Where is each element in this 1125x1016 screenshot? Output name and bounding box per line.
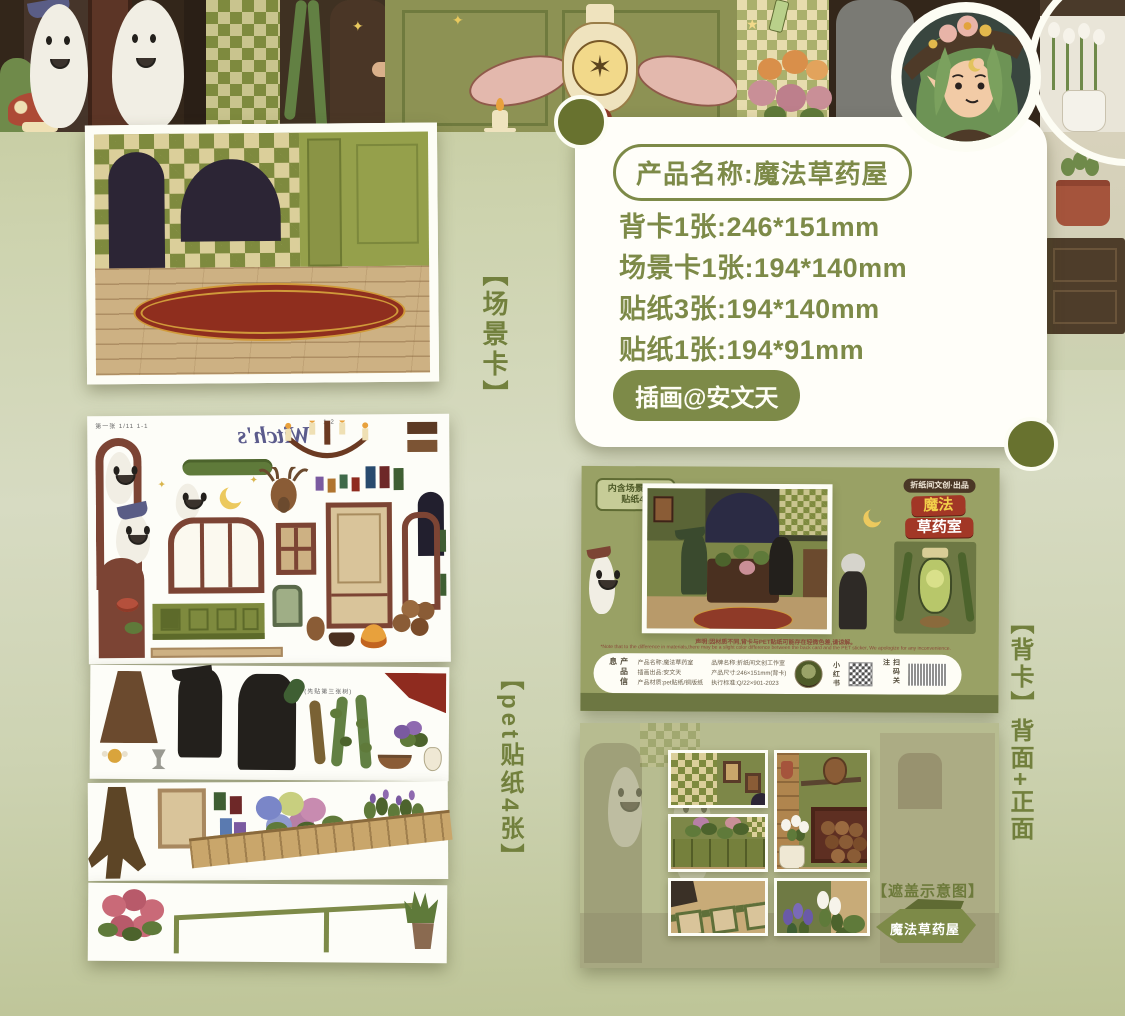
goblet-sticker [152,749,166,769]
tree-trunk-sticker [88,787,146,879]
plant-pot-sticker [410,923,436,949]
flower-icon [748,80,776,106]
decorative-dot [554,95,608,149]
shot-floor [799,867,870,872]
pet-sticker-label: 【pet贴纸4张】 [492,666,527,871]
mushroom-sticker [125,622,143,634]
cabinet-front [673,839,768,867]
info-line: 品牌名称:折纸间文创工作室 [711,658,786,669]
spec-line: 背卡1张:246*151mm [619,205,880,244]
potion-books-sticker [214,792,226,810]
window-mullion [281,547,311,551]
rose-bush-sticker [102,895,126,917]
sticker-sheet-1: 第一张 1/11 1-1 1-2 Witch's ✦ ✦ [87,414,451,665]
candle-icon [492,110,508,130]
publisher-badge: 折纸间文创·出品 [904,479,976,493]
info-line: 执行标准:Q/22×901-2023 [711,679,786,690]
title-ribbon: 魔法草药屋 [876,895,976,947]
sparkle-icon: ★ [746,16,759,33]
leaf-cluster-sticker [330,708,342,718]
shot-checker-corner [747,817,768,837]
log-pile-icon [821,821,835,835]
sheet2-note: (先贴第三张树) [304,686,352,695]
ghost-sticker [116,512,150,564]
door-rail [331,593,387,596]
scene-cabinet [356,144,419,245]
vine-sticker [355,694,372,769]
flower-icon [782,50,808,74]
shelf-drawer [1053,248,1117,282]
framed-picture [653,496,673,522]
door-sticker [326,502,393,628]
rail-panel [743,901,768,930]
cabinet-door [242,608,258,630]
sparkle-icon: ✦ [452,12,464,29]
ghost-sticker [176,483,200,519]
scene-plants [733,545,749,559]
shot-floor [671,867,768,872]
mushroom-sticker [116,598,138,612]
info-line: 产品材质:pet贴纸/铜版纸 [637,678,703,689]
info-line: 插画出品:安文天 [638,668,704,679]
shelf-drawer [1053,290,1117,324]
sticker-sheet-3 [88,781,449,881]
bush-icon [843,915,865,933]
scene-card-label: 【场景卡】 [476,260,513,410]
faded-mirror [898,753,942,809]
granny-robe [839,571,867,629]
shot-checker [671,753,717,808]
potion-row-sticker [316,477,324,491]
illustrator-avatar [891,2,1041,152]
sconce-stickers [440,530,446,552]
railing-post [174,917,179,953]
scene-rug [693,606,793,633]
snitch-sticker [108,749,122,763]
lavender-blooms [370,793,376,803]
rail-panel [709,905,738,934]
flower-icon [758,58,782,80]
cabinet-sticker [152,603,264,640]
witch-black [769,537,793,595]
info-bar-label: 产品信息 [607,657,629,689]
detail-shot-cabinet [668,814,768,872]
deer-head-sticker [255,467,311,517]
candle-dish [484,128,516,132]
tulip-vase-icon [779,845,805,869]
ghost-icon [112,0,184,132]
vase-icon [781,761,793,779]
ghost-mascot [589,554,615,614]
detail-shot-garden [774,878,870,936]
sparkle-icon: ✦ [352,18,364,35]
product-info-card: 产品名称:魔法草药屋 背卡1张:246*151mm 场景卡1张:194*140m… [575,117,1047,447]
product-info-bar: 产品信息 产品名称:魔法草药室 插画出品:安文天 产品材质:pet贴纸/铜版纸 … [593,653,961,695]
checker-wall [206,0,280,132]
scene-dresser [803,549,833,597]
title-chip-bottom: 草药室 [905,517,973,538]
flower-cluster-sticker [394,725,410,739]
spec-line: 贴纸1张:194*91mm [619,328,864,367]
hydrangea-sticker [256,796,282,820]
window-mullion [200,523,204,587]
narrow-frame-sticker [402,512,441,610]
dark-arch [751,793,768,808]
plant-row-icon [685,825,701,837]
framed-picture-icon [745,773,761,793]
product-name-badge: 产品名称:魔法草药屋 [613,144,912,201]
scroll-vine [957,552,974,622]
cabinet-door [160,609,180,631]
ribbon-label: 魔法草药屋 [890,919,960,938]
back-card-label: 【背卡】背面+正面 [1002,610,1037,843]
branch-sticker [309,700,326,765]
scan-label: 扫码关注 [880,658,900,690]
fireplace [811,807,870,863]
box-stickers [407,422,437,434]
back-card-scene [642,483,833,634]
hyacinth-icon [783,909,793,925]
door-panel [337,513,381,583]
scene-card-image [85,122,439,384]
wood-shelf [1045,238,1125,334]
owl-sticker [307,617,325,641]
tulip-bouquet-icon [781,819,791,831]
product-poster: ✶ ✦ ✦ ★ 产品名称:魔法草药屋 背卡1张:24 [0,0,1125,1016]
info-line: 产品名称:魔法草药室 [638,658,704,669]
coverage-demo-panel: 【遮盖示意图】 魔法草药屋 [580,723,999,968]
books-row-sticker [365,466,375,488]
scene-arch-doorway [108,152,165,270]
bread-basket-sticker [378,755,412,769]
cabinet-door [216,608,236,630]
bottle-glow [926,570,944,588]
moon-icon [863,509,881,527]
rail-panel [675,909,704,936]
info-line: 产品尺寸:246×151mm(背卡) [711,668,786,679]
detail-shot-fireplace-owl [774,750,870,872]
log-pile-sticker [393,614,411,632]
moth-ornament [920,616,950,628]
railing-post [324,910,329,952]
calla-lily-icon [817,891,829,909]
terracotta-pot-icon [1056,180,1110,226]
fence-sticker [189,810,453,869]
cabinet-door [188,608,208,630]
shadow-gap [184,0,206,132]
moon-sticker [220,487,242,509]
dark-corner [668,878,698,908]
scroll-vine [895,551,913,621]
owl-icon [823,757,847,785]
window-mullion [228,523,232,587]
back-card-image: 内含场景卡1p 贴纸4p 折纸间文创·出品 魔法 草药室 [580,466,999,713]
cover-art-panel [894,542,976,634]
plant-leaves-icon [1061,158,1075,176]
title-chip-top: 魔法 [911,495,966,517]
flower-icon [806,60,828,80]
vine-sticker [331,696,349,767]
bottle-cap [922,548,948,558]
robe-sticker [100,671,159,743]
pennant-sticker [384,673,446,713]
basket-sticker [329,632,355,646]
elf-avatar-icon [891,2,1041,152]
granny-witch [837,553,869,629]
floor-plank-sticker [151,647,283,658]
spec-line: 场景卡1张:194*140mm [619,246,907,285]
potted-plant-leaves [404,891,438,923]
sticker-sheet-2: (先贴第三张树) [90,665,450,782]
illustrator-badge: 插画@安文天 [613,370,800,421]
decorative-dot [1004,417,1058,471]
scene-checker [779,489,832,535]
back-card-bottom-strip [580,693,998,713]
candle-flame [496,98,504,111]
rose-leaves [98,923,118,937]
witch-figure-sticker [178,669,223,757]
sparkle-sticker: ✦ [158,480,166,491]
sticker-sheet-4 [88,883,448,964]
qr-code-icon [848,662,872,686]
info-col-2: 品牌名称:折纸间文创工作室 产品尺寸:246×151mm(背卡) 执行标准:Q/… [711,658,786,689]
lavender-plant-sticker [364,801,376,819]
scene-door [307,138,342,266]
detail-shot-railing [668,878,768,936]
small-window-sticker [276,523,316,575]
detail-shot-checker-wall [668,750,768,808]
flower-icon [806,86,832,110]
framed-picture-icon [723,761,741,783]
barcode-icon [908,664,946,686]
right-illustration-strip [1043,132,1125,370]
railing-sticker [174,903,418,921]
mirror-sticker [272,585,302,627]
info-col-1: 产品名称:魔法草药室 插画出品:安文天 产品材质:pet贴纸/铜版纸 [637,658,703,689]
sheet-header-left: 第一张 1/11 1-1 [95,421,148,430]
xiaohongshu-label: 小红书 [830,661,840,688]
vase-sticker [424,747,442,771]
witch-green [681,532,707,594]
disclaimer-en: *Note that to the difference in material… [581,644,971,652]
big-window-sticker [168,517,265,594]
hexagram-emblem-icon: ✶ [572,40,628,96]
brand-logo-icon [794,660,822,688]
spec-line: 贴纸3张:194*140mm [619,287,880,326]
